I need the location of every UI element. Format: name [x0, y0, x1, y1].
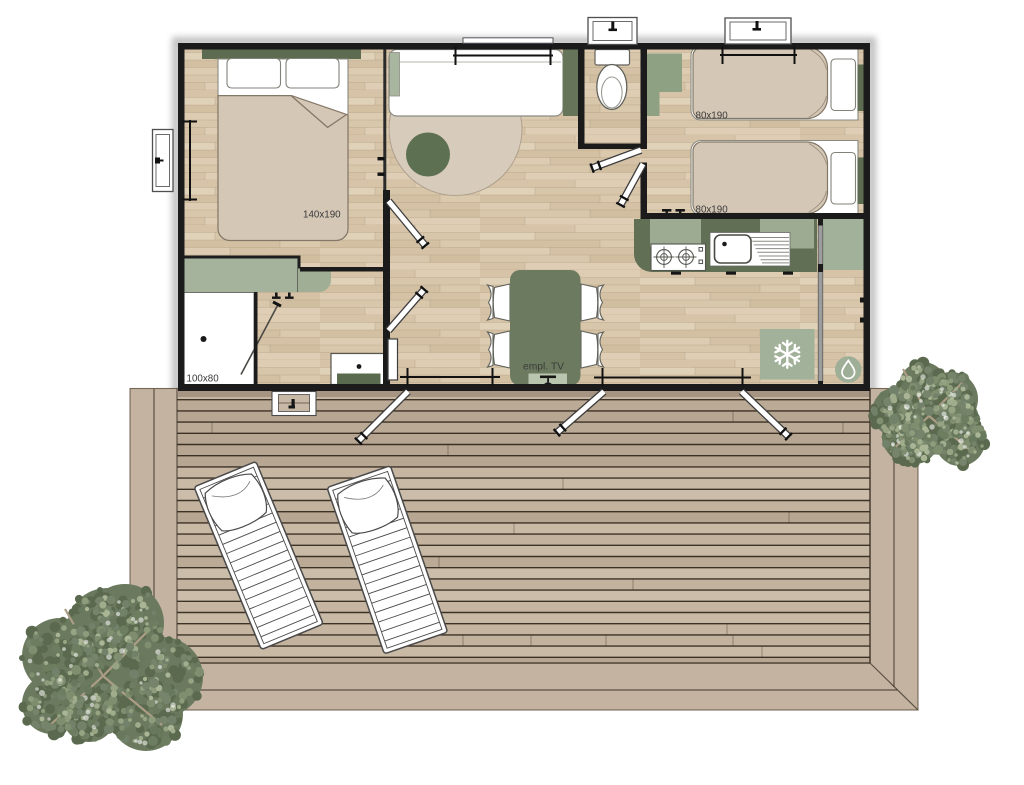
svg-text:140x190: 140x190: [303, 210, 341, 221]
svg-text:empl. TV: empl. TV: [523, 362, 564, 373]
svg-text:100x80: 100x80: [187, 374, 220, 385]
svg-text:80x190: 80x190: [696, 111, 729, 122]
